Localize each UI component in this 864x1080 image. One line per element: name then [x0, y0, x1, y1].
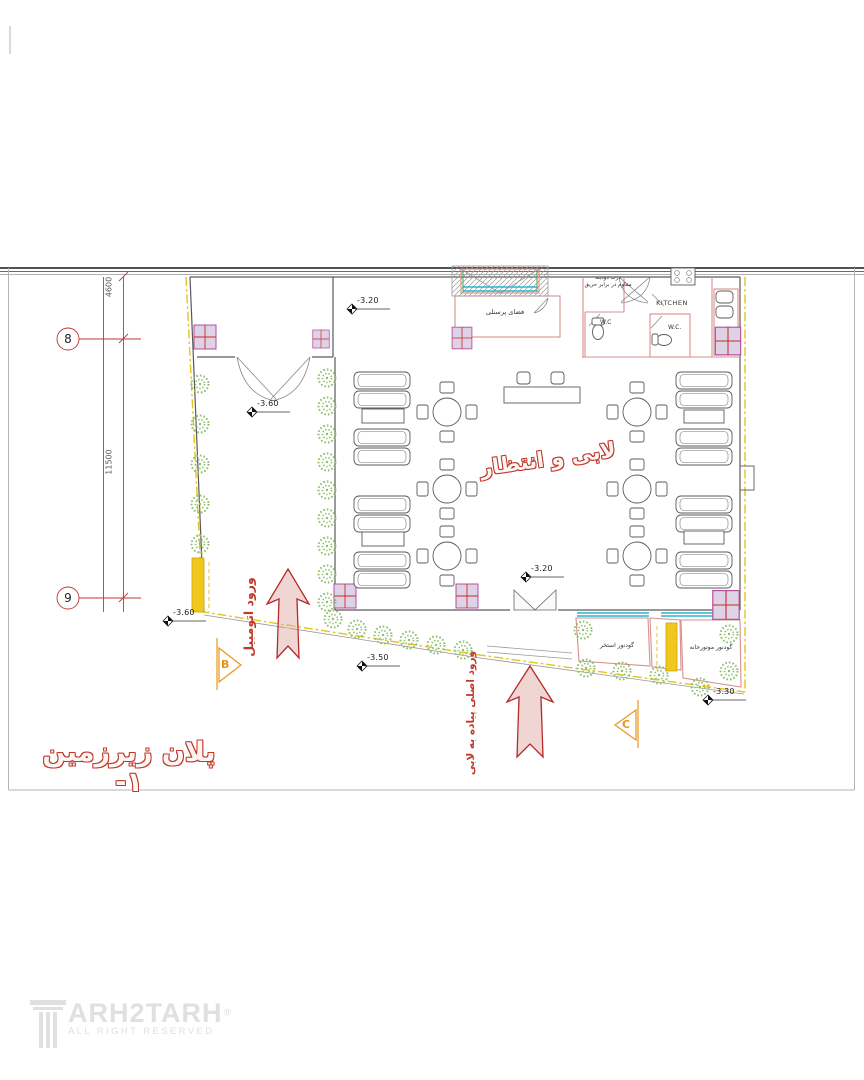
lightwell-pool-label: گودنور استخر	[588, 643, 646, 650]
car-entrance-label: ورود اتومبیل	[242, 577, 256, 656]
level-southeast: -3.30	[713, 688, 735, 697]
kitchen-label: KITCHEN	[650, 300, 694, 307]
door-note-line1: درب دودبند	[578, 275, 638, 282]
sheet-frame	[0, 26, 864, 790]
dimension-grid	[57, 272, 141, 612]
level-lobby-top: -3.20	[357, 297, 379, 306]
level-driveway: -3.60	[173, 609, 195, 618]
logo-tagline: ALL RIGHT RESERVED	[68, 1026, 233, 1037]
lightwell-mech-label: گودنور موتورخانه	[678, 645, 744, 652]
driveway-yellow-bar	[192, 558, 204, 612]
door-note-line2: مقاوم در برابر حریق	[578, 282, 638, 289]
logo-registered: ®	[223, 1008, 233, 1019]
section-b-label: B	[221, 658, 229, 671]
plan-linework	[0, 0, 864, 1080]
staff-room-label: فضای پرسنلی	[465, 309, 545, 316]
tarh2tarh-logo: ARH2TARH® ALL RIGHT RESERVED	[30, 1000, 233, 1048]
dimension-11500: 11500	[106, 449, 115, 474]
floor-plan-sheet: 8 9 4600 11500 -3.20 -3.60 -3.20 -3.60 -…	[0, 0, 864, 1080]
grid-bubble-9: 9	[57, 587, 79, 609]
door-note: درب دودبند مقاوم در برابر حریق	[578, 275, 638, 289]
level-entry: -3.60	[257, 400, 279, 409]
logo-brand: ARH2TARH	[68, 998, 223, 1028]
wc-left-label: W.C	[600, 320, 611, 327]
columns	[194, 325, 741, 619]
car-entrance-arrow	[267, 569, 309, 658]
column-icon	[30, 1000, 66, 1048]
level-walkway: -3.50	[367, 654, 389, 663]
lobby-furniture	[354, 372, 732, 588]
entrance-arrows	[267, 569, 553, 757]
section-c-label: C	[622, 718, 630, 731]
stair-lightwell	[452, 266, 548, 296]
dimension-4600: 4600	[106, 277, 115, 297]
trees	[192, 370, 738, 696]
plan-title: پلان زیرزمین ۱-	[24, 738, 234, 797]
pedestrian-entrance-label: ورود اصلی پیاده به لابی	[466, 651, 478, 775]
wc-right-label: W.C.	[668, 325, 681, 332]
grid-bubble-8: 8	[57, 328, 79, 350]
pedestrian-entrance-arrow	[507, 666, 553, 757]
level-main-door: -3.20	[531, 565, 553, 574]
